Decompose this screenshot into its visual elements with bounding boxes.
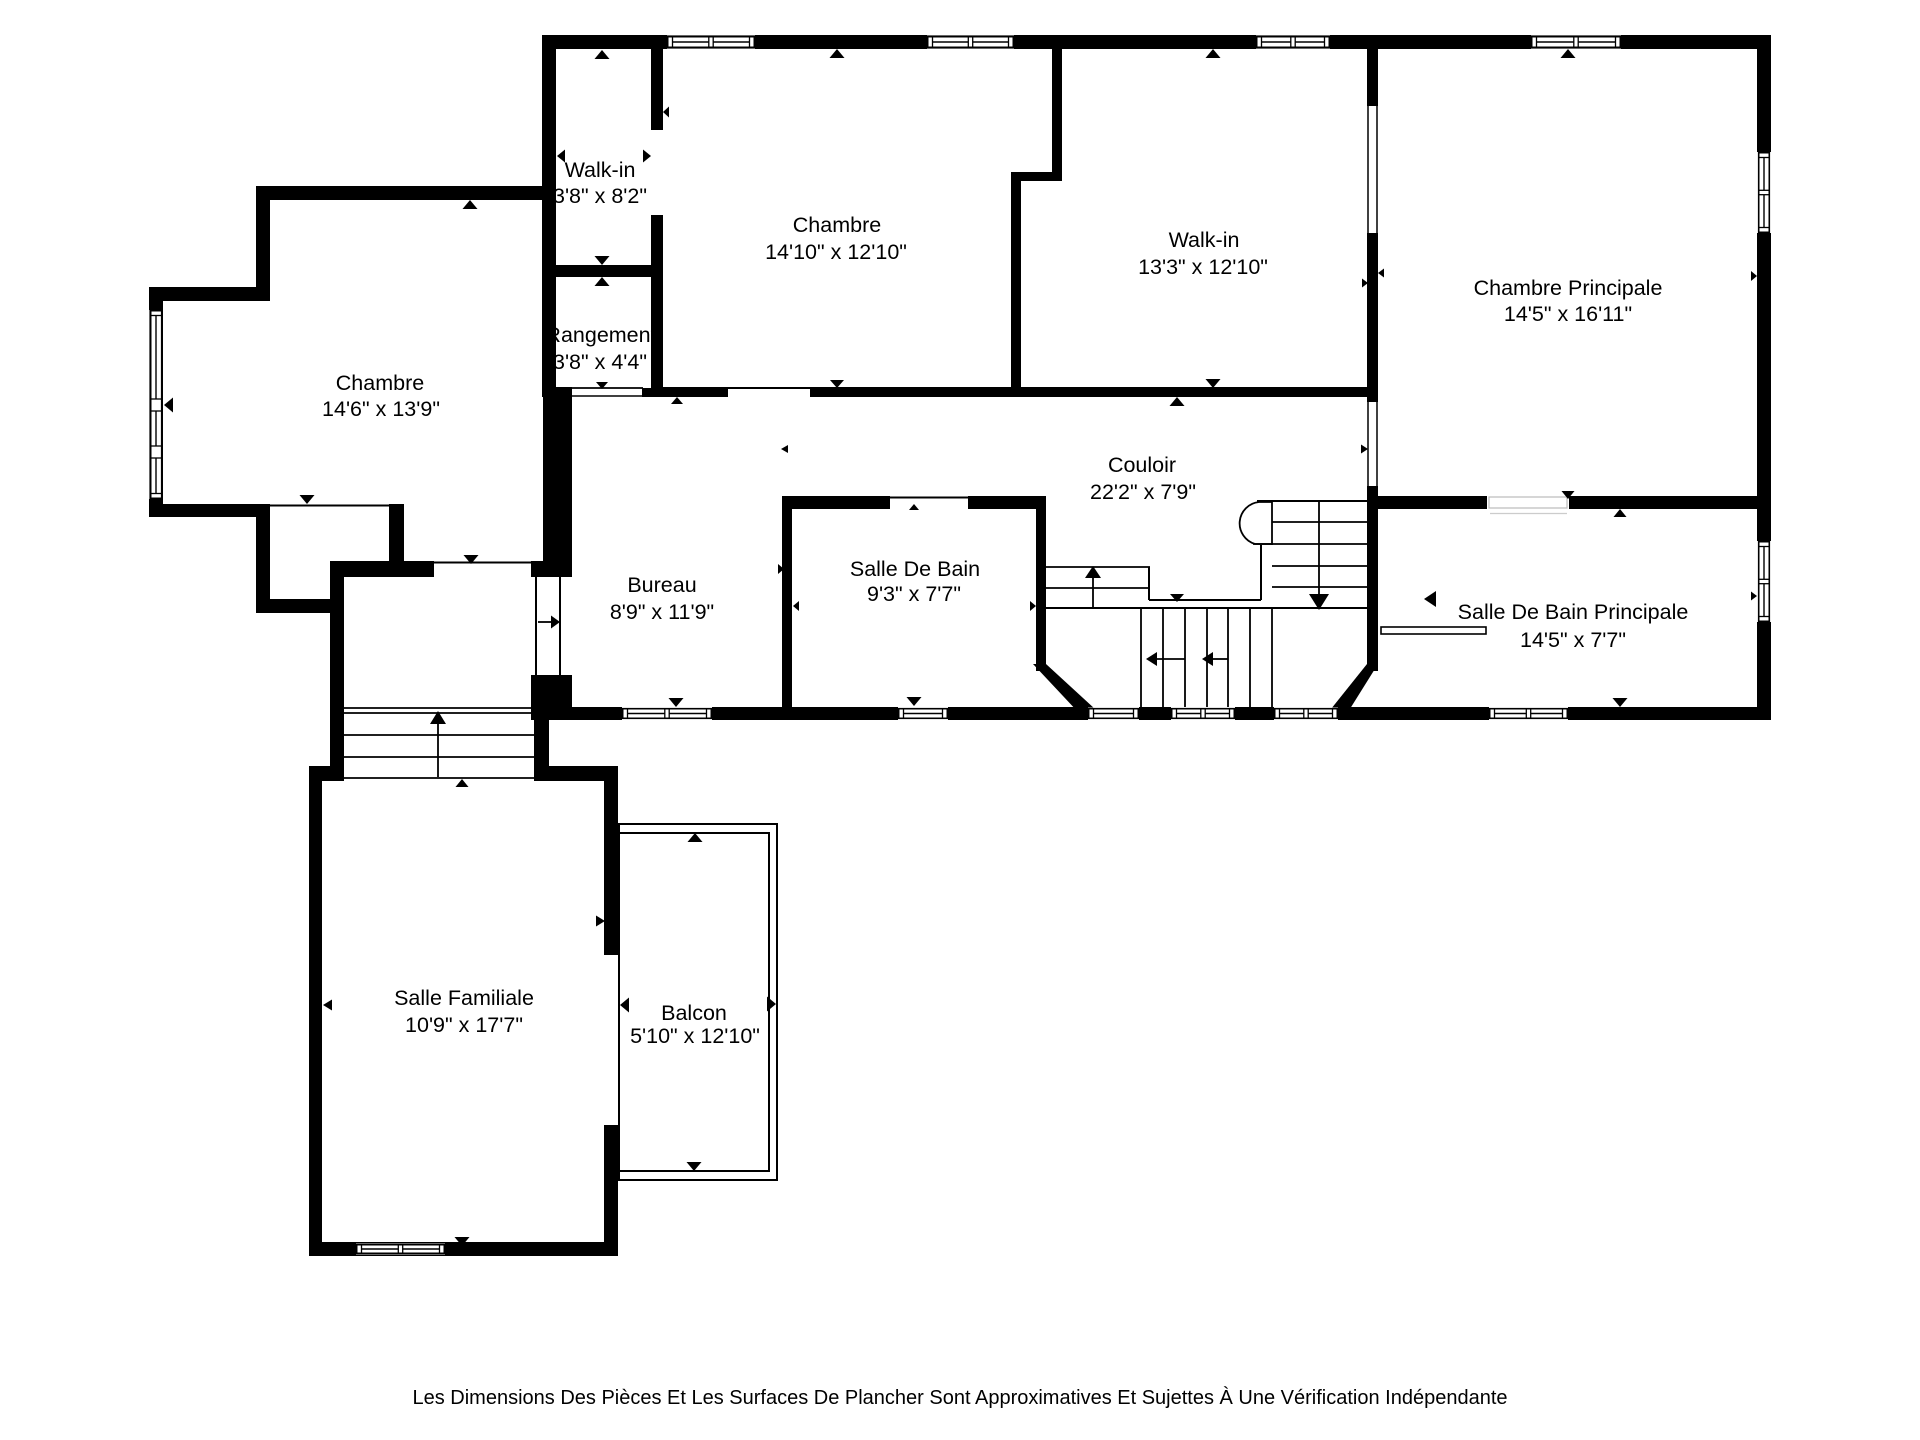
svg-text:Rangement: Rangement xyxy=(545,323,656,347)
svg-text:Salle De Bain Principale: Salle De Bain Principale xyxy=(1458,600,1689,624)
svg-text:3'8" x 8'2": 3'8" x 8'2" xyxy=(553,184,647,208)
svg-text:Walk-in: Walk-in xyxy=(1169,228,1240,252)
svg-text:14'10" x 12'10": 14'10" x 12'10" xyxy=(765,240,907,264)
svg-text:14'5" x 7'7": 14'5" x 7'7" xyxy=(1520,628,1626,652)
svg-text:Chambre: Chambre xyxy=(336,371,424,395)
svg-text:Couloir: Couloir xyxy=(1108,453,1176,477)
svg-text:3'8" x 4'4": 3'8" x 4'4" xyxy=(553,350,647,374)
svg-text:10'9" x 17'7": 10'9" x 17'7" xyxy=(405,1013,523,1037)
svg-text:22'2" x 7'9": 22'2" x 7'9" xyxy=(1090,480,1196,504)
svg-text:Chambre Principale: Chambre Principale xyxy=(1474,276,1663,300)
svg-text:Salle De Bain: Salle De Bain xyxy=(850,557,980,581)
svg-text:14'6" x 13'9": 14'6" x 13'9" xyxy=(322,397,440,421)
svg-text:9'3" x 7'7": 9'3" x 7'7" xyxy=(867,582,961,606)
svg-text:Les Dimensions Des Pièces Et L: Les Dimensions Des Pièces Et Les Surface… xyxy=(412,1386,1507,1409)
svg-text:5'10" x 12'10": 5'10" x 12'10" xyxy=(630,1024,760,1048)
svg-text:Salle Familiale: Salle Familiale xyxy=(394,986,534,1010)
svg-text:14'5" x 16'11": 14'5" x 16'11" xyxy=(1504,302,1632,326)
svg-text:Chambre: Chambre xyxy=(793,213,881,237)
svg-text:Balcon: Balcon xyxy=(661,1001,727,1025)
svg-text:8'9" x 11'9": 8'9" x 11'9" xyxy=(610,600,714,624)
svg-text:Bureau: Bureau xyxy=(627,573,696,597)
svg-text:Walk-in: Walk-in xyxy=(565,158,636,182)
svg-text:13'3" x 12'10": 13'3" x 12'10" xyxy=(1138,255,1268,279)
